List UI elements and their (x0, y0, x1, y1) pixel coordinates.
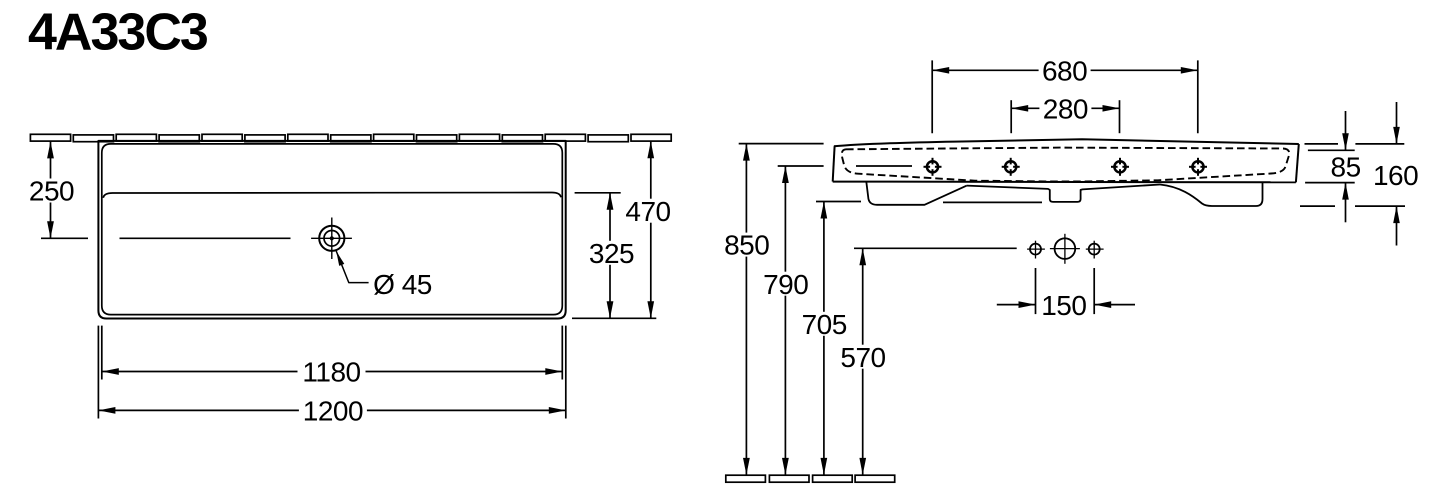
svg-text:680: 680 (1042, 55, 1087, 86)
svg-text:570: 570 (840, 342, 885, 373)
svg-text:850: 850 (724, 230, 769, 261)
svg-text:1180: 1180 (302, 357, 360, 388)
svg-text:1200: 1200 (303, 396, 363, 427)
svg-text:705: 705 (802, 309, 847, 340)
svg-text:325: 325 (589, 238, 634, 269)
svg-text:150: 150 (1041, 290, 1086, 321)
svg-text:250: 250 (29, 176, 74, 207)
svg-text:280: 280 (1043, 93, 1088, 124)
svg-text:Ø 45: Ø 45 (373, 269, 432, 300)
svg-text:470: 470 (625, 196, 670, 227)
svg-text:160: 160 (1373, 160, 1418, 191)
svg-text:790: 790 (763, 269, 808, 300)
svg-text:85: 85 (1331, 152, 1361, 183)
svg-text:4A33C3: 4A33C3 (28, 4, 208, 62)
